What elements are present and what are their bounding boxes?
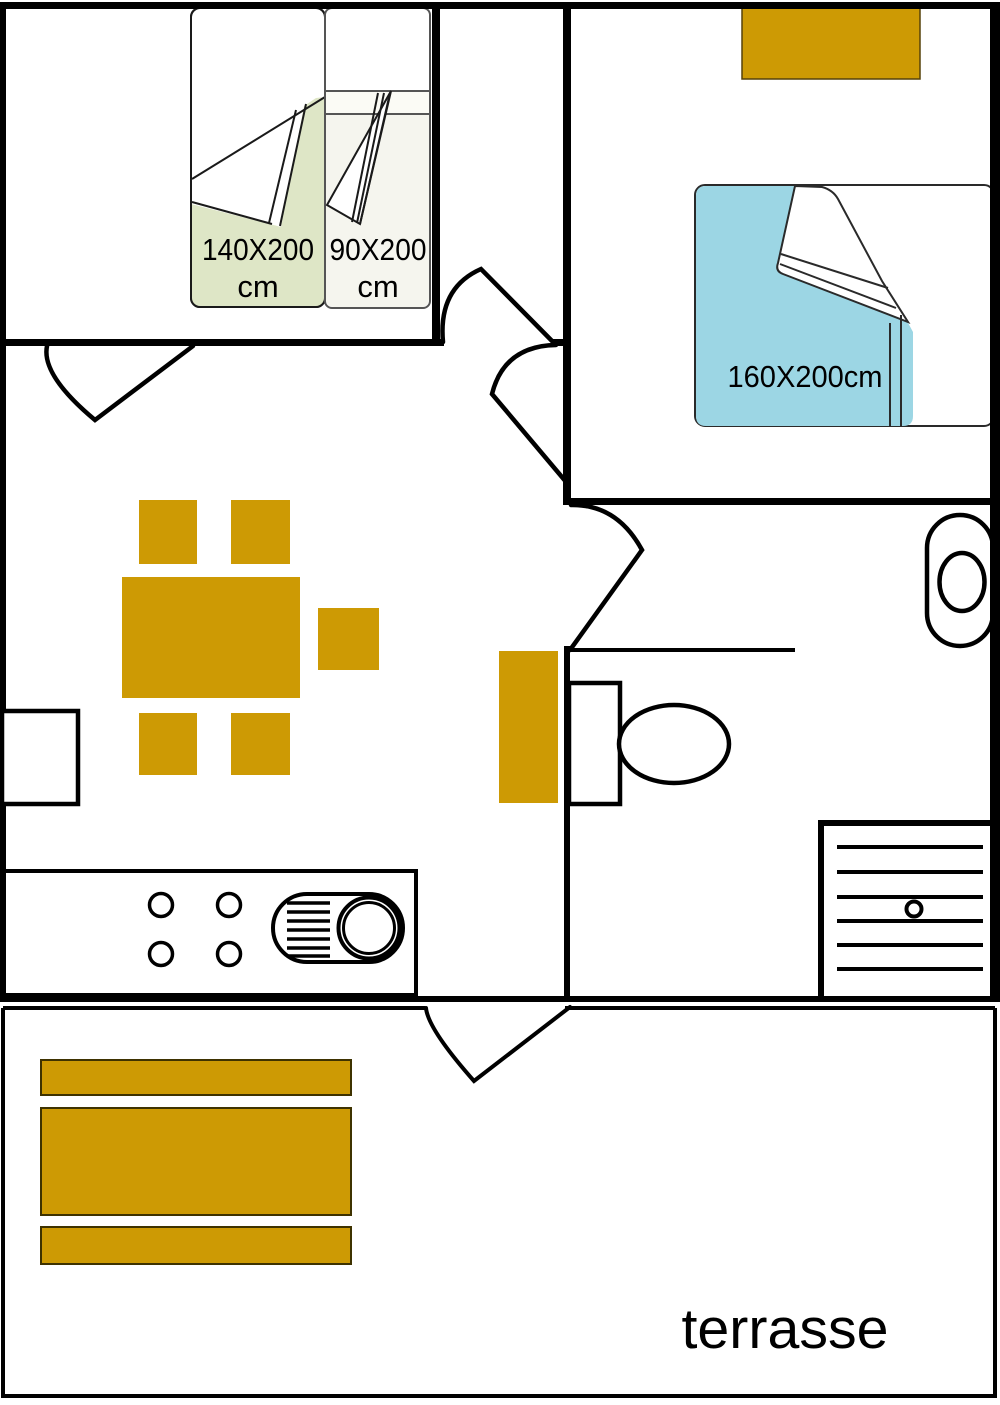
svg-text:cm: cm [237,269,278,304]
svg-text:terrasse: terrasse [682,1297,889,1361]
svg-text:140X200: 140X200 [202,232,314,267]
svg-text:90X200: 90X200 [330,232,427,267]
svg-text:cm: cm [357,269,398,304]
svg-text:160X200cm: 160X200cm [728,359,883,394]
